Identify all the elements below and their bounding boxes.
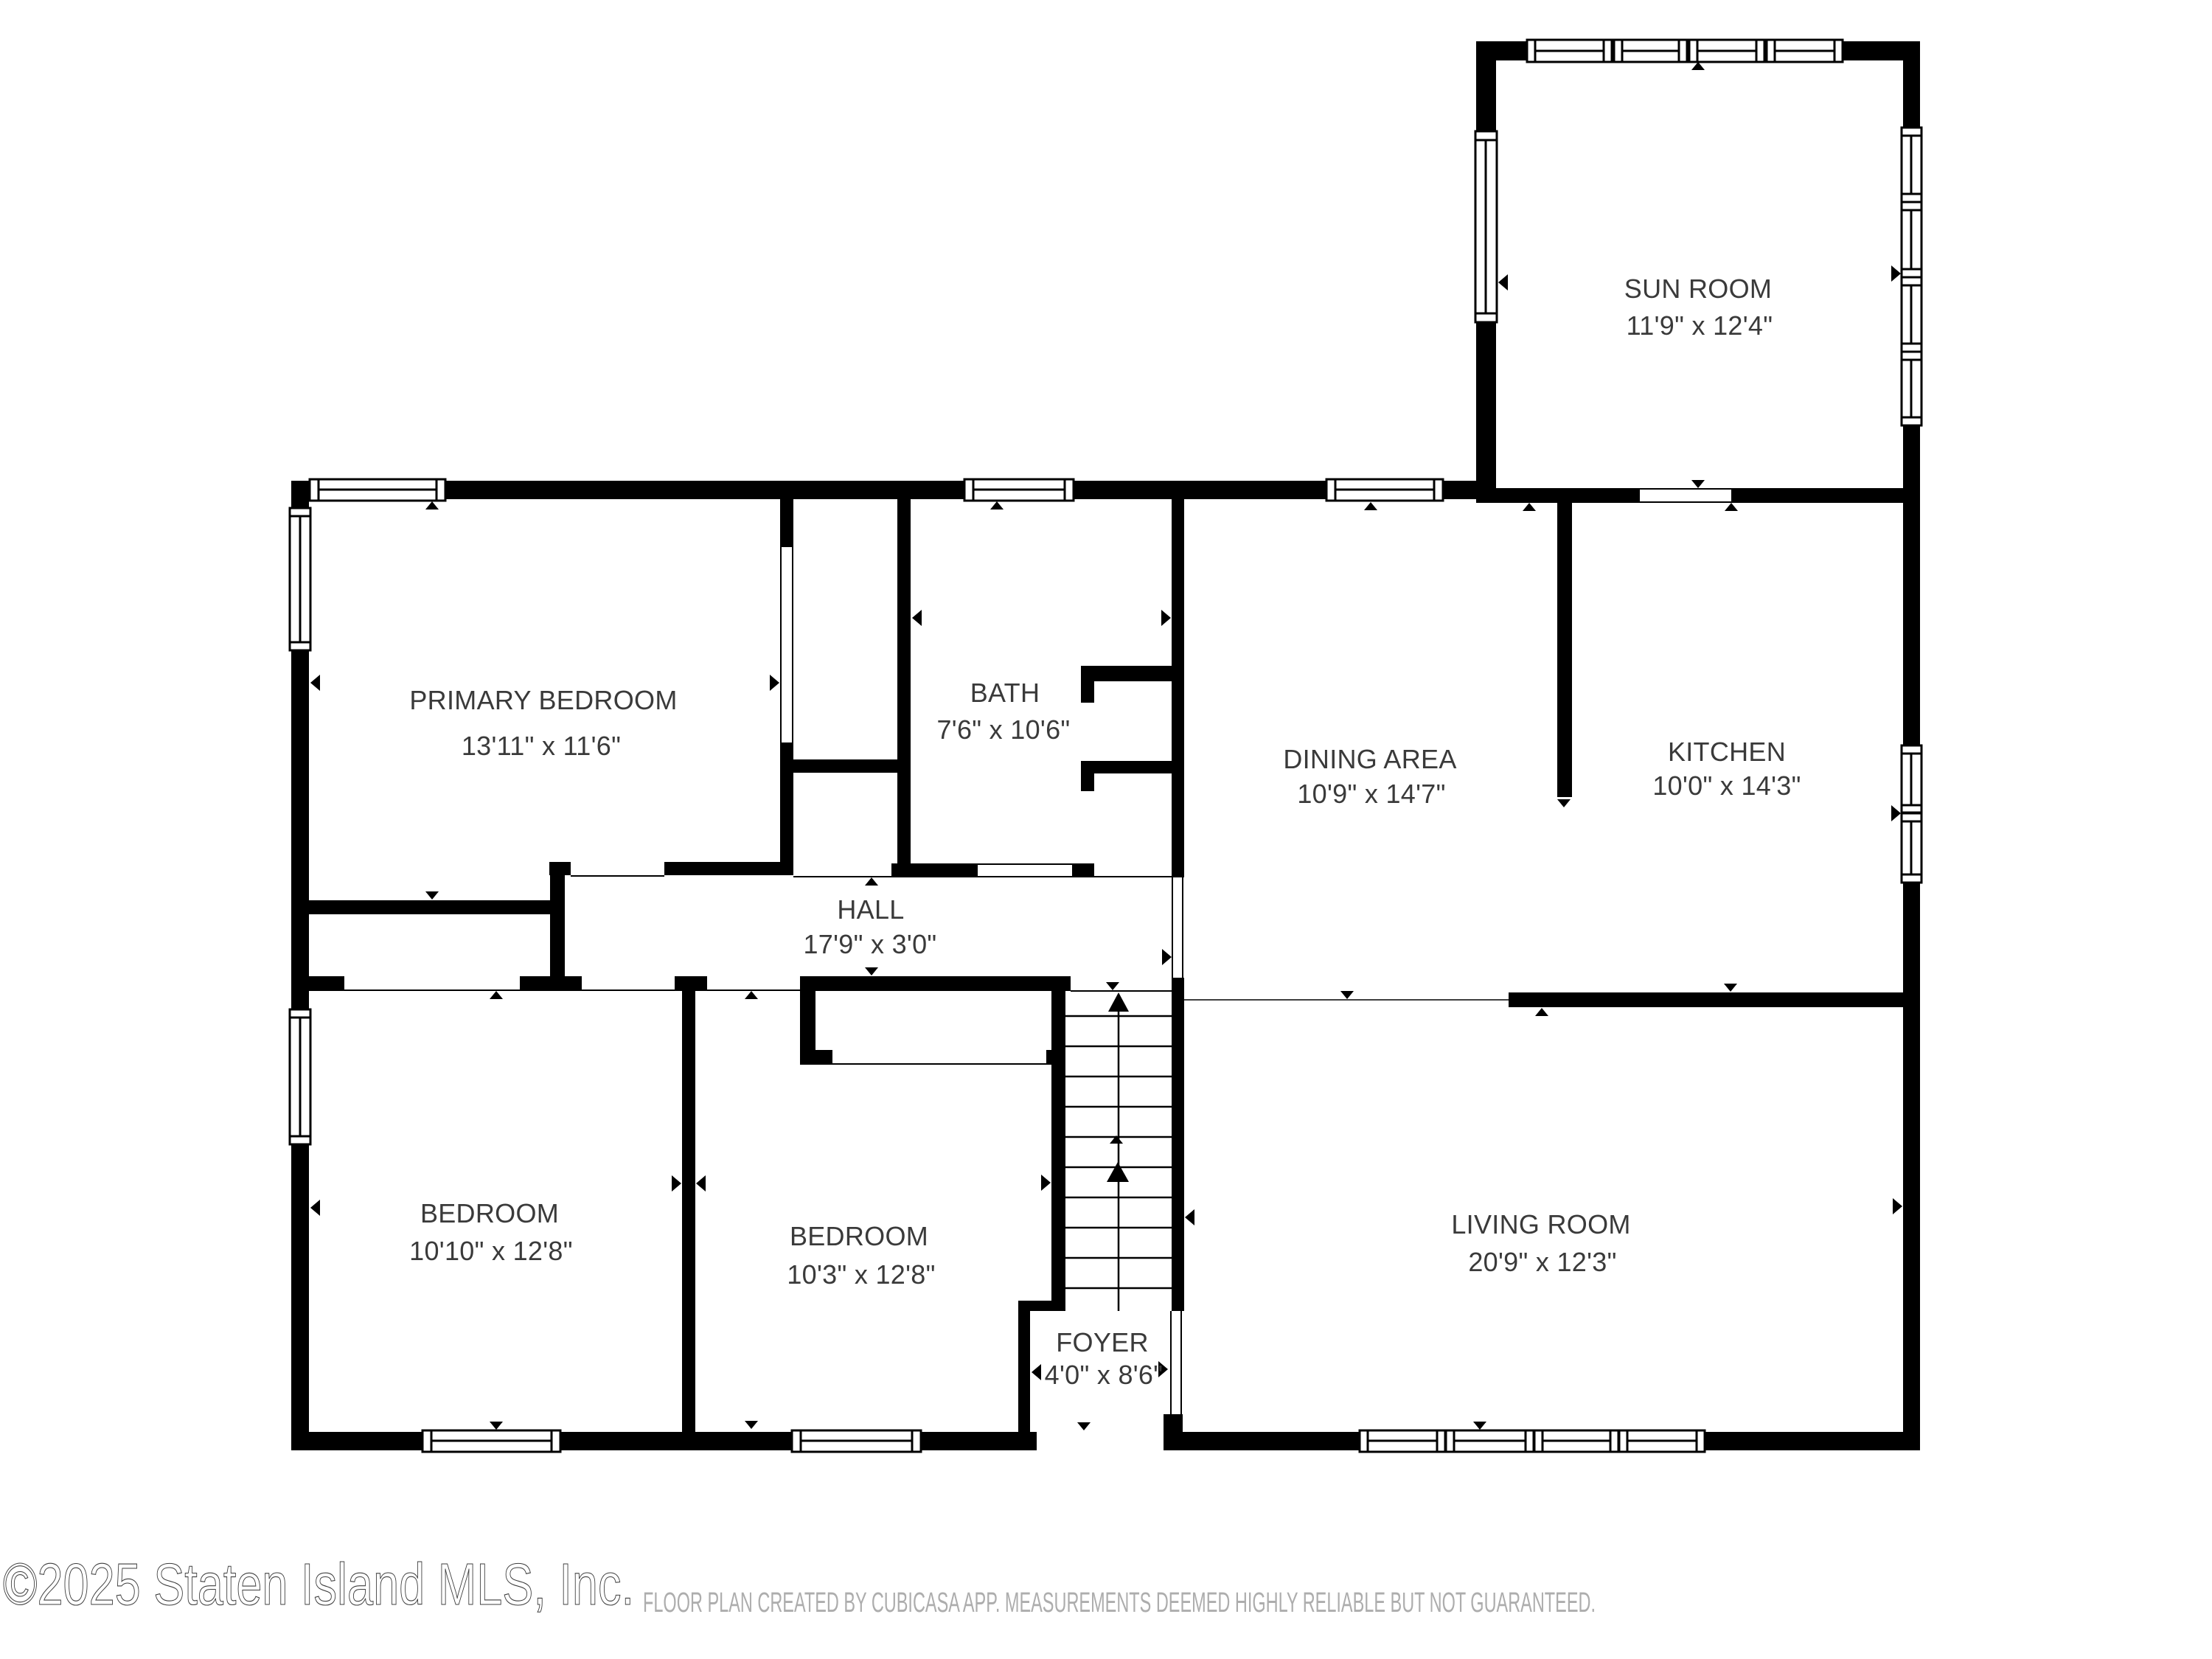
svg-text:11'9" x 12'4": 11'9" x 12'4" — [1627, 310, 1773, 341]
svg-text:7'6" x 10'6": 7'6" x 10'6" — [936, 714, 1070, 745]
svg-text:FLOOR PLAN CREATED BY CUBICASA: FLOOR PLAN CREATED BY CUBICASA APP. MEAS… — [643, 1587, 1596, 1618]
svg-text:BEDROOM: BEDROOM — [790, 1221, 928, 1251]
svg-text:©2025 Staten Island MLS, Inc.: ©2025 Staten Island MLS, Inc. — [3, 1551, 634, 1617]
svg-text:SUN ROOM: SUN ROOM — [1624, 274, 1772, 304]
svg-text:10'9" x 14'7": 10'9" x 14'7" — [1297, 779, 1445, 809]
svg-text:FOYER: FOYER — [1056, 1327, 1149, 1357]
svg-text:LIVING ROOM: LIVING ROOM — [1451, 1209, 1630, 1239]
svg-text:10'10" x 12'8": 10'10" x 12'8" — [409, 1236, 573, 1266]
svg-text:17'9" x 3'0": 17'9" x 3'0" — [803, 929, 936, 959]
svg-text:20'9" x 12'3": 20'9" x 12'3" — [1468, 1247, 1616, 1277]
svg-text:BATH: BATH — [970, 678, 1040, 708]
svg-text:10'0" x 14'3": 10'0" x 14'3" — [1652, 771, 1801, 801]
svg-text:10'3" x 12'8": 10'3" x 12'8" — [787, 1259, 935, 1290]
svg-text:13'11" x 11'6": 13'11" x 11'6" — [462, 731, 621, 761]
svg-text:HALL: HALL — [837, 894, 904, 925]
svg-text:PRIMARY BEDROOM: PRIMARY BEDROOM — [409, 685, 677, 715]
svg-text:BEDROOM: BEDROOM — [420, 1198, 559, 1228]
svg-text:DINING AREA: DINING AREA — [1283, 744, 1456, 774]
svg-text:KITCHEN: KITCHEN — [1668, 737, 1786, 767]
svg-text:4'0" x 8'6": 4'0" x 8'6" — [1045, 1360, 1164, 1390]
